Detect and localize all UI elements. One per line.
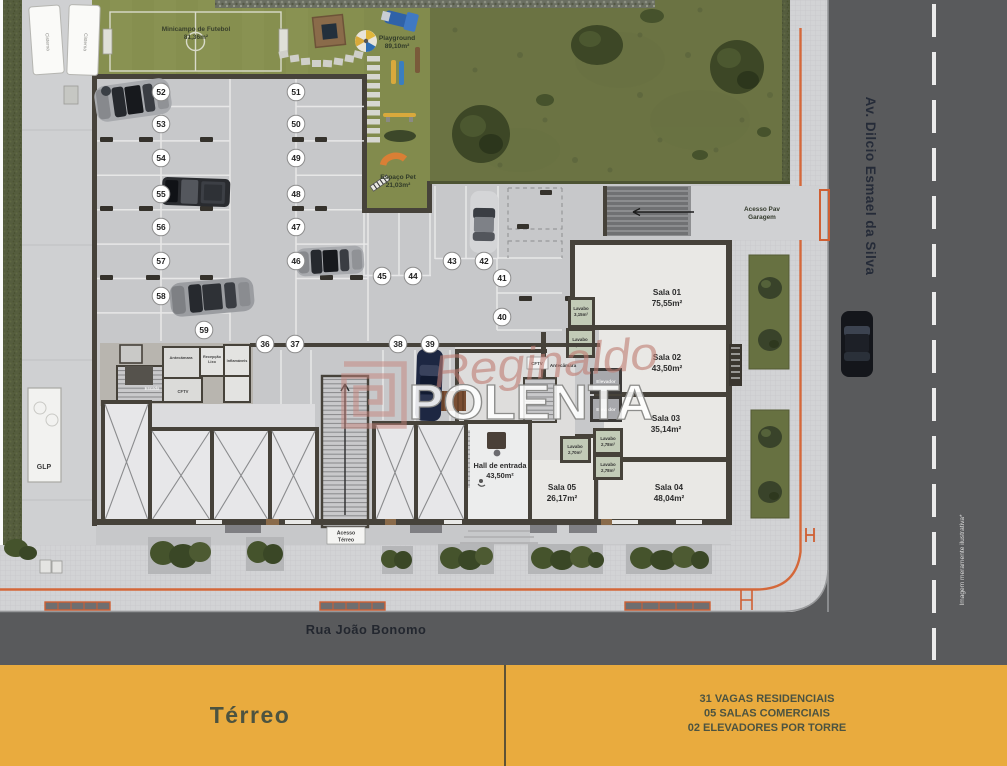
svg-text:43,50m²: 43,50m² <box>486 471 514 480</box>
svg-text:57: 57 <box>156 256 166 266</box>
svg-text:54: 54 <box>156 153 166 163</box>
svg-text:Imagem meramente ilustrativa*: Imagem meramente ilustrativa* <box>959 514 966 606</box>
svg-text:POLENTA: POLENTA <box>409 376 654 430</box>
svg-text:Av. Dilcio Esmael da Silva: Av. Dilcio Esmael da Silva <box>863 97 878 276</box>
svg-text:Playground: Playground <box>379 35 415 42</box>
svg-text:Lavabo: Lavabo <box>600 436 616 441</box>
svg-text:49: 49 <box>291 153 301 163</box>
svg-text:52: 52 <box>156 87 166 97</box>
svg-text:2,78m²: 2,78m² <box>601 442 615 447</box>
svg-text:50: 50 <box>291 119 301 129</box>
svg-text:Inflamáveis: Inflamáveis <box>227 359 248 363</box>
svg-text:2,78m²: 2,78m² <box>601 468 615 473</box>
svg-text:Cisterna: Cisterna <box>82 33 89 51</box>
svg-text:GLP: GLP <box>37 464 52 471</box>
svg-text:46: 46 <box>291 256 301 266</box>
svg-text:Acesso Pav: Acesso Pav <box>744 206 780 213</box>
svg-text:Sala 03: Sala 03 <box>652 414 681 423</box>
svg-text:59: 59 <box>199 325 209 335</box>
svg-text:35,14m²: 35,14m² <box>651 425 682 434</box>
svg-text:26,17m²: 26,17m² <box>547 494 578 503</box>
svg-text:89,10m²: 89,10m² <box>385 43 410 50</box>
svg-text:Acesso: Acesso <box>337 531 355 537</box>
svg-text:Lavabo: Lavabo <box>573 306 589 311</box>
svg-text:05 SALAS COMERCIAIS: 05 SALAS COMERCIAIS <box>704 708 830 720</box>
svg-text:31 VAGAS RESIDENCIAIS: 31 VAGAS RESIDENCIAIS <box>700 693 835 705</box>
svg-text:Sala 01: Sala 01 <box>653 288 682 297</box>
svg-text:3,15m²: 3,15m² <box>574 312 588 317</box>
svg-text:48,04m²: 48,04m² <box>654 494 685 503</box>
svg-text:Térreo: Térreo <box>338 538 354 544</box>
svg-text:2,70m²: 2,70m² <box>568 450 582 455</box>
svg-text:Rua João Bonomo: Rua João Bonomo <box>306 622 427 637</box>
svg-text:Garagem: Garagem <box>748 214 776 221</box>
svg-text:56: 56 <box>156 222 166 232</box>
svg-text:CFTV: CFTV <box>178 389 189 394</box>
svg-text:Antecâmara: Antecâmara <box>170 355 194 360</box>
svg-text:Sala 05: Sala 05 <box>548 483 577 492</box>
svg-text:75,55m²: 75,55m² <box>652 299 683 308</box>
svg-text:02 ELEVADORES POR TORRE: 02 ELEVADORES POR TORRE <box>688 722 847 734</box>
svg-text:42: 42 <box>479 256 489 266</box>
svg-text:36: 36 <box>260 339 270 349</box>
svg-text:51: 51 <box>291 87 301 97</box>
svg-text:47: 47 <box>291 222 301 232</box>
svg-text:45: 45 <box>377 271 387 281</box>
svg-text:58: 58 <box>156 291 166 301</box>
svg-text:41: 41 <box>497 273 507 283</box>
svg-text:81,36m²: 81,36m² <box>184 34 209 41</box>
svg-text:55: 55 <box>156 189 166 199</box>
svg-text:53: 53 <box>156 119 166 129</box>
svg-text:44: 44 <box>408 271 418 281</box>
svg-text:37: 37 <box>290 339 300 349</box>
svg-text:Térreo: Térreo <box>210 702 291 728</box>
svg-text:Lixo: Lixo <box>208 360 216 364</box>
svg-text:21,03m²: 21,03m² <box>386 182 411 189</box>
svg-text:Minicampo de Futebol: Minicampo de Futebol <box>162 26 231 33</box>
svg-text:48: 48 <box>291 189 301 199</box>
svg-text:Lavabo: Lavabo <box>567 444 583 449</box>
svg-text:Escada: Escada <box>145 386 160 391</box>
svg-text:Sala 04: Sala 04 <box>655 483 684 492</box>
svg-text:43: 43 <box>447 256 457 266</box>
svg-text:Recepção: Recepção <box>203 355 222 359</box>
svg-text:Lavabo: Lavabo <box>600 462 616 467</box>
svg-text:38: 38 <box>393 339 403 349</box>
svg-text:Espaço Pet: Espaço Pet <box>380 174 416 181</box>
svg-text:Hall de entrada: Hall de entrada <box>474 461 528 470</box>
svg-text:40: 40 <box>497 312 507 322</box>
